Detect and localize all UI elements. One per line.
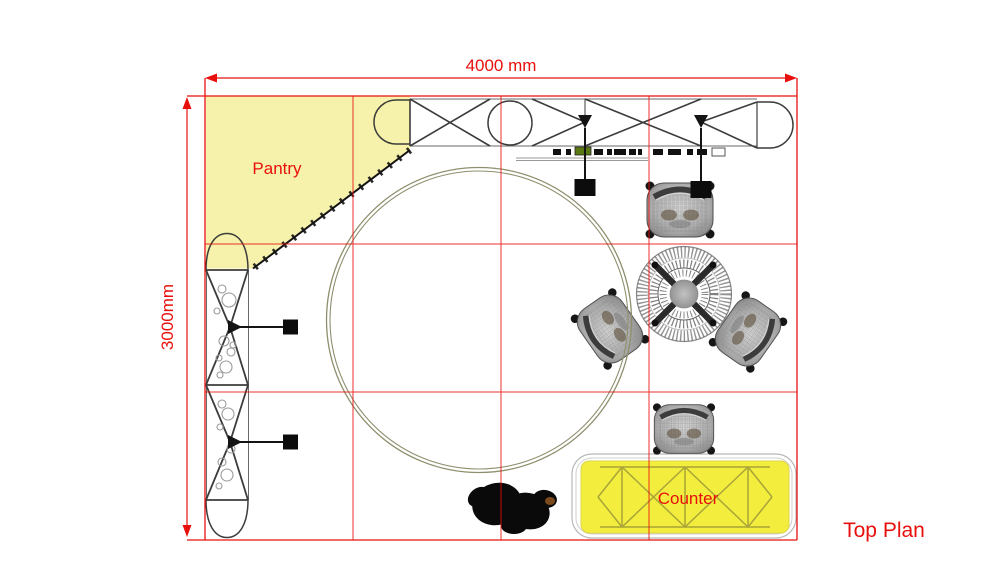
counter-label: Counter	[658, 489, 719, 508]
plan-caption: Top Plan	[843, 519, 925, 542]
floor-plan-svg: 4000 mm 3000mm Pantry Counter Top Plan	[0, 0, 1000, 563]
shelf-green-item	[575, 147, 591, 155]
width-dimension-label: 4000 mm	[466, 56, 537, 75]
canvas-background	[0, 0, 1000, 563]
round-table	[637, 247, 732, 342]
height-dimension-label: 3000mm	[158, 284, 177, 350]
chair-single	[653, 403, 715, 454]
pantry-label: Pantry	[252, 159, 302, 178]
top-plan-drawing: 4000 mm 3000mm Pantry Counter Top Plan	[0, 0, 1000, 563]
